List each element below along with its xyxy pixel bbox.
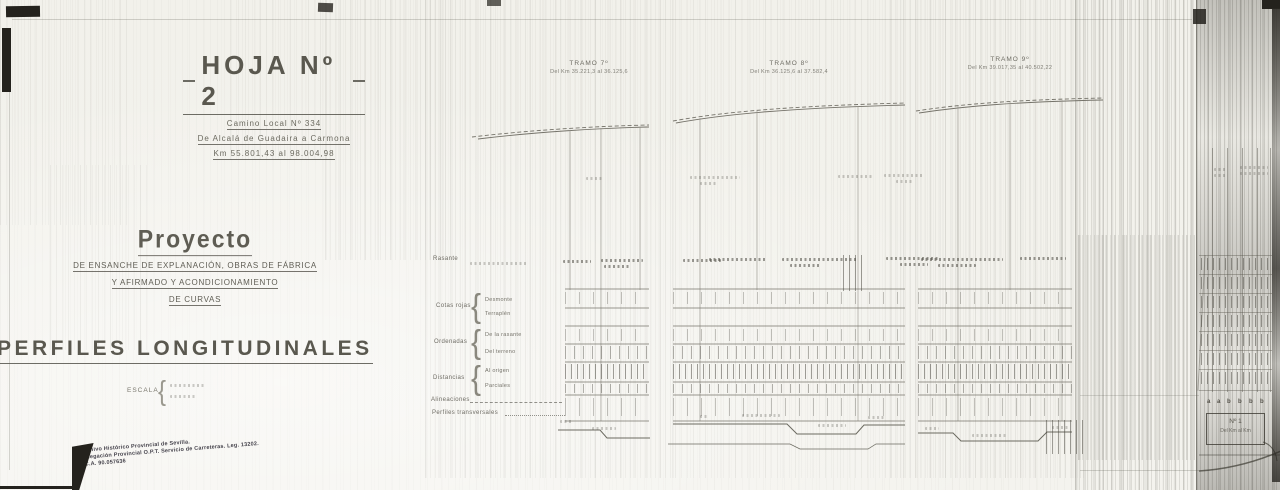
rasante-line-tramo8 xyxy=(676,105,905,123)
scan-black-mark xyxy=(0,486,78,489)
row-label-rasante: Rasante xyxy=(433,256,458,262)
guitar-figures xyxy=(918,398,1072,416)
gradient-note-smudge xyxy=(838,175,872,178)
alignment-note-smudge xyxy=(560,420,572,423)
gradient-note-smudge xyxy=(586,177,602,180)
guitar-figures xyxy=(918,292,1072,304)
row-item-de-la-rasante: De la rasante xyxy=(485,332,522,338)
margin-table-rowline xyxy=(1199,390,1272,391)
margin-sheet-box: Nº 1 Del Km al Km xyxy=(1206,413,1265,445)
gradient-note-smudge xyxy=(896,180,912,183)
margin-table-rowline xyxy=(1199,350,1272,351)
margin-table-rowline xyxy=(1199,369,1272,370)
project-heading: Proyecto xyxy=(138,225,252,256)
tramo-7-range: Del Km 35.221,3 al 36.125,6 xyxy=(543,69,635,75)
margin-col-letter: b xyxy=(1260,399,1264,405)
guitar-figures xyxy=(673,398,905,416)
alignment-note-smudge xyxy=(1052,426,1068,429)
scan-black-mark xyxy=(2,28,11,92)
margin-table-rowline xyxy=(1199,331,1272,332)
tramo-9-range: Del Km 39.017,35 al 40.502,22 xyxy=(958,65,1062,71)
alignment-note-smudge xyxy=(700,415,709,418)
guitar-figures xyxy=(673,384,905,393)
guitar-figures xyxy=(918,346,1072,359)
sheet-title: HOJA Nº 2 xyxy=(183,50,365,115)
project-line-1: DE ENSANCHE DE EXPLANACIÓN, OBRAS DE FÁB… xyxy=(73,261,317,272)
rasante-line-tramo7 xyxy=(478,127,649,139)
margin-table-cells xyxy=(1201,258,1270,270)
alignment-tramo8-upper xyxy=(673,424,905,434)
annotation-smudge xyxy=(921,258,1003,261)
tramo-8-name: TRAMO 8º xyxy=(743,60,835,67)
drawing-title: PERFILES LONGITUDINALES xyxy=(0,337,373,364)
sheet-border-right xyxy=(1196,0,1197,490)
row-item-desmonte: Desmonte xyxy=(485,297,512,303)
margin-col-letter: a xyxy=(1217,399,1220,405)
row-item-terraplen: Terraplén xyxy=(485,311,511,317)
tramo-9-name: TRAMO 9º xyxy=(958,56,1062,63)
alignment-tramo8-lower xyxy=(668,444,905,449)
guitar-figures xyxy=(565,364,649,379)
gradient-note-smudge xyxy=(690,176,740,179)
scan-edge-shadow xyxy=(1272,8,1280,482)
alignment-note-smudge xyxy=(868,416,884,419)
scan-curve xyxy=(1199,451,1280,471)
annotation-smudge xyxy=(1020,257,1066,260)
margin-col-letter: b xyxy=(1249,399,1253,405)
terrain-line-tramo7 xyxy=(472,125,649,137)
gradient-note-smudge xyxy=(884,174,924,177)
alineaciones-leader xyxy=(470,402,562,403)
alignment-note-smudge xyxy=(742,414,780,417)
margin-table-cells xyxy=(1201,334,1270,346)
scale-label: ESCALA xyxy=(127,387,159,394)
margin-table-header-smudge xyxy=(1240,166,1268,169)
guitar-figures xyxy=(918,329,1072,341)
sheet-title-text: HOJA Nº 2 xyxy=(201,50,346,112)
row-item-del-terreno: Del terreno xyxy=(485,349,516,355)
title-dash xyxy=(183,80,195,82)
guitar-figures xyxy=(673,364,905,379)
scan-stripes xyxy=(0,0,130,225)
row-item-parciales: Parciales xyxy=(485,383,510,389)
road-name: Camino Local Nº 334 xyxy=(227,119,321,130)
margin-table-cells xyxy=(1201,353,1270,365)
tramo-8-header: TRAMO 8º Del Km 36.125,6 al 37.582,4 xyxy=(743,60,835,75)
margin-table-rowline xyxy=(1199,312,1272,313)
margin-table-colline xyxy=(1270,148,1271,392)
margin-table-rowline xyxy=(1199,293,1272,294)
annotation-smudge xyxy=(563,260,591,263)
guitar-figures xyxy=(918,384,1072,393)
guitar-figures xyxy=(565,292,649,304)
margin-col-letter: a xyxy=(1207,399,1210,405)
margin-sheet-number: Nº 1 xyxy=(1207,418,1264,425)
guitar-figures xyxy=(673,329,905,341)
alignment-diagrams xyxy=(558,424,1072,449)
scale-brace: { xyxy=(158,376,166,408)
margin-table-cells xyxy=(1201,296,1270,308)
row-label-ordenadas: Ordenadas xyxy=(434,339,467,345)
margin-col-letter: b xyxy=(1227,399,1231,405)
guitar-figures xyxy=(918,364,1072,379)
distancias-brace: { xyxy=(471,363,481,396)
alignment-note-smudge xyxy=(592,427,616,430)
scan-black-mark xyxy=(487,0,501,6)
guitar-figures xyxy=(565,346,649,359)
scan-stripes-heavy xyxy=(1078,235,1195,460)
sheet-border-left xyxy=(9,85,10,470)
terrain-line-tramo9 xyxy=(916,98,1103,111)
perfiles-leader xyxy=(505,415,565,416)
gradient-note-smudge xyxy=(700,182,718,185)
scale-value-smudge xyxy=(170,395,196,398)
scan-stripes-heavy xyxy=(1075,0,1195,490)
scan-black-mark xyxy=(318,3,333,13)
cotas-rojas-brace: { xyxy=(471,291,481,324)
scan-black-mark xyxy=(1193,9,1206,24)
project-line-3: DE CURVAS xyxy=(169,295,221,306)
sheet-border-bottom xyxy=(1080,470,1199,471)
margin-col-letter: b xyxy=(1238,399,1242,405)
row-label-perfiles-transversales: Perfiles transversales xyxy=(432,410,498,416)
alignment-note-smudge xyxy=(925,427,939,430)
alignment-tramo7 xyxy=(558,430,650,438)
project-line-2: Y AFIRMADO Y ACONDICIONAMIENTO xyxy=(112,278,279,289)
guitar-figures xyxy=(565,384,649,393)
ordenadas-brace: { xyxy=(471,327,481,360)
margin-sheet-range: Del Km al Km xyxy=(1207,428,1264,434)
guitar-figures xyxy=(673,292,905,304)
margin-table-rowline xyxy=(1199,255,1272,256)
project-block: Proyecto DE ENSANCHE DE EXPLANACIÓN, OBR… xyxy=(60,226,330,306)
rasante-dots xyxy=(470,262,528,265)
terrain-lines xyxy=(472,98,1103,139)
annotation-smudge xyxy=(709,258,767,261)
annotation-smudge xyxy=(782,258,858,261)
title-dash xyxy=(353,80,365,82)
tramo-7-name: TRAMO 7º xyxy=(543,60,635,67)
road-stretch: De Alcalá de Guadaira a Carmona xyxy=(198,134,351,145)
row-label-distancias: Distancias xyxy=(433,375,465,381)
annotation-smudge xyxy=(900,263,928,266)
row-label-cotas-rojas: Cotas rojas xyxy=(436,303,471,309)
row-item-al-origen: Al origen xyxy=(485,368,509,374)
annotation-smudge xyxy=(601,259,643,262)
scale-value-smudge xyxy=(170,384,206,387)
margin-table-header-smudge xyxy=(1214,168,1226,171)
annotation-smudge xyxy=(938,264,976,267)
guitar-figures xyxy=(565,329,649,341)
annotation-smudge xyxy=(604,265,630,268)
margin-table-rowline xyxy=(1199,274,1272,275)
rasante-line-tramo9 xyxy=(919,100,1103,113)
alignment-note-smudge xyxy=(818,424,846,427)
tramo-7-header: TRAMO 7º Del Km 35.221,3 al 36.125,6 xyxy=(543,60,635,75)
terrain-line-tramo8 xyxy=(673,103,905,121)
tramo-9-header: TRAMO 9º Del Km 39.017,35 al 40.502,22 xyxy=(958,56,1062,71)
margin-table-extension xyxy=(1080,395,1199,396)
margin-table-cells xyxy=(1201,277,1270,289)
annotation-smudge xyxy=(790,264,820,267)
archive-stamp: Archivo Histórico Provincial de Sevilla.… xyxy=(80,431,301,469)
tramo-8-range: Del Km 36.125,6 al 37.582,4 xyxy=(743,69,835,75)
margin-table-cells xyxy=(1201,372,1270,384)
scanned-drawing-sheet: HOJA Nº 2 Camino Local Nº 334 De Alcalá … xyxy=(0,0,1280,490)
sheet-border-top xyxy=(12,19,1192,20)
scan-black-mark xyxy=(6,6,40,18)
guitar-figures xyxy=(565,398,649,416)
guitar-figures xyxy=(673,346,905,359)
title-block: HOJA Nº 2 Camino Local Nº 334 De Alcalá … xyxy=(183,50,365,160)
alignment-note-smudge xyxy=(972,434,1008,437)
row-label-alineaciones: Alineaciones xyxy=(431,397,470,403)
margin-table-cells xyxy=(1201,315,1270,327)
margin-table-header-smudge xyxy=(1214,174,1226,177)
road-km-range: Km 55.801,43 al 98.004,98 xyxy=(213,149,334,160)
margin-table-header-smudge xyxy=(1240,172,1268,175)
bottom-right-marks xyxy=(1199,442,1280,471)
